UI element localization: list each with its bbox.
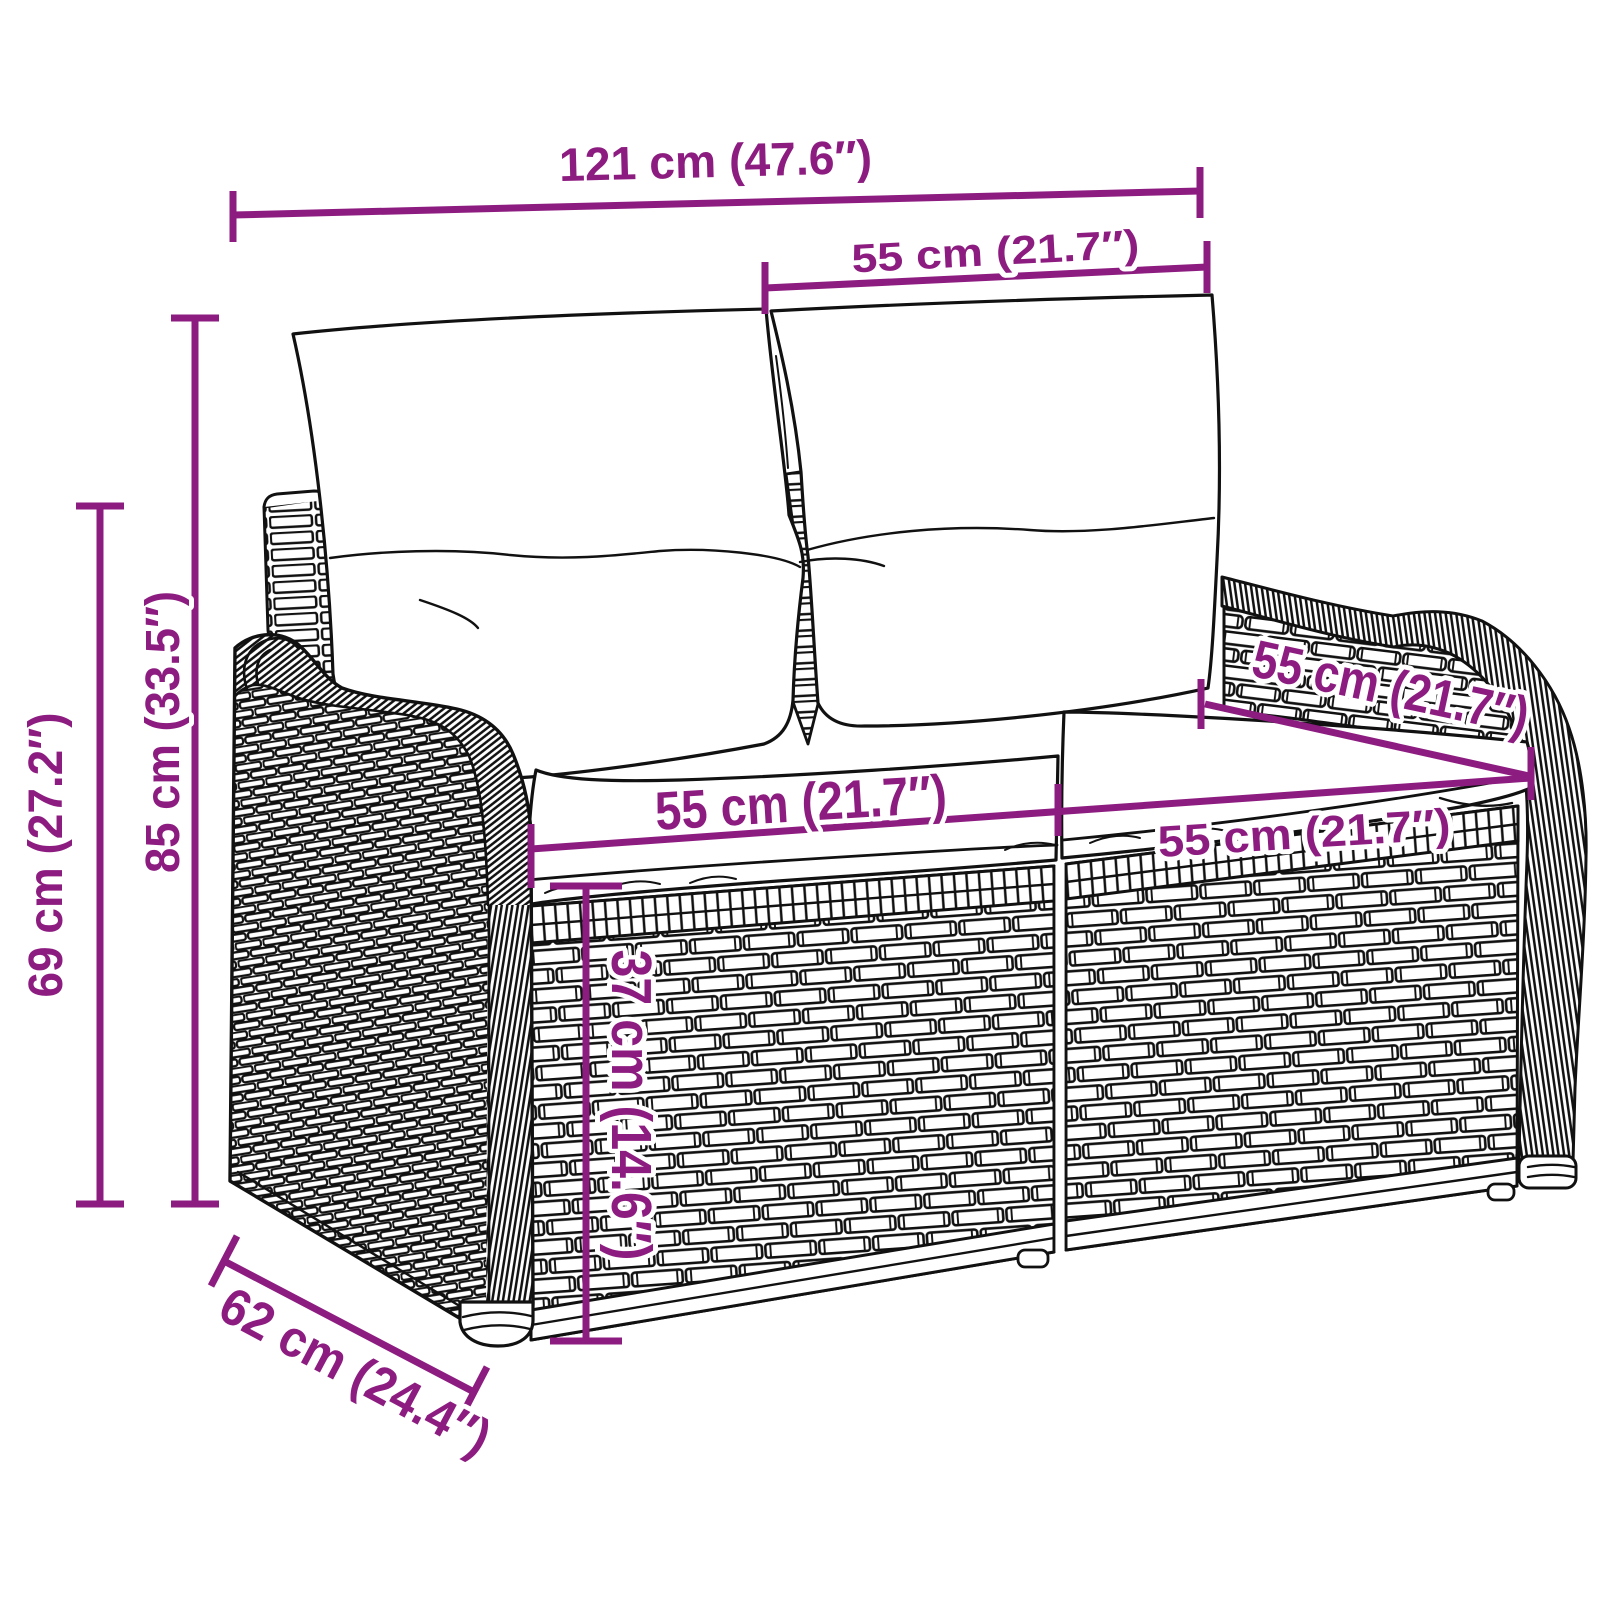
svg-text:69 cm (27.2″): 69 cm (27.2″) (20, 713, 73, 998)
svg-text:37 cm (14.6″): 37 cm (14.6″) (599, 950, 663, 1261)
svg-text:121 cm (47.6″): 121 cm (47.6″) (558, 130, 872, 191)
svg-text:85 cm (33.5″): 85 cm (33.5″) (137, 591, 190, 873)
